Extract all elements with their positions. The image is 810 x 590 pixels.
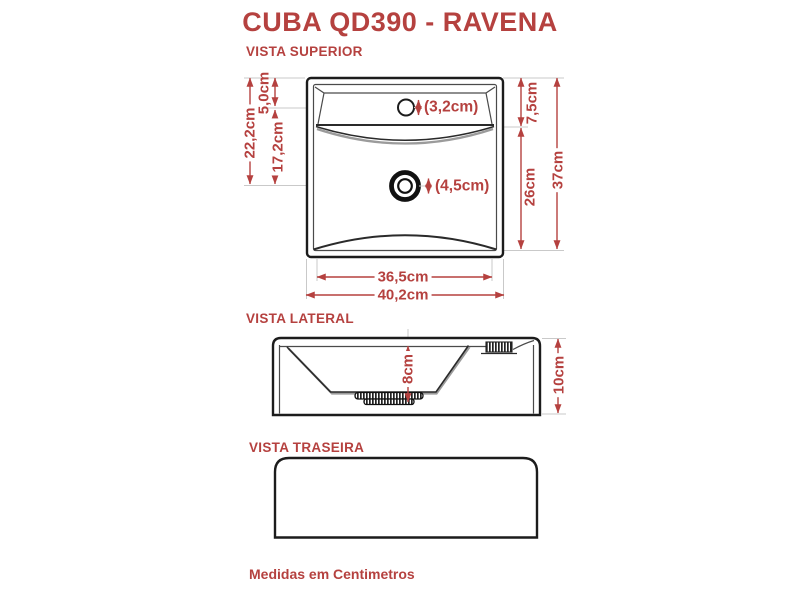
dim-top-to-faucet-line: 5,0cm (257, 72, 272, 115)
dim-inner-width: 36,5cm (375, 269, 432, 286)
faucet-hole-section (486, 342, 512, 352)
dim-side-overall-height: 10cm (551, 353, 568, 397)
drain-section-upper (355, 393, 423, 400)
side-view-label: VISTA LATERAL (246, 311, 354, 326)
drain-section-lower (364, 399, 414, 405)
rear-view-label: VISTA TRASEIRA (249, 440, 364, 455)
dim-faucet-line-to-drain: 17,2cm (270, 119, 287, 176)
dim-deck-depth: 7,5cm (525, 82, 540, 125)
callout-drain-hole-diameter: (4,5cm) (433, 178, 491, 194)
top-view-drawing (244, 78, 564, 299)
side-view-drawing (273, 329, 566, 415)
rear-view-drawing (275, 458, 537, 538)
page-title: CUBA QD390 - RAVENA (0, 7, 800, 38)
dim-basin-depth: 8cm (400, 351, 417, 387)
dim-deck-to-bottom: 26cm (523, 168, 538, 206)
top-view-label: VISTA SUPERIOR (246, 44, 363, 59)
rear-body (275, 458, 537, 538)
drain-hole-inner (398, 179, 412, 193)
dim-overall-height: 37cm (550, 148, 567, 192)
callout-faucet-hole-diameter: (3,2cm) (422, 99, 480, 115)
faucet-hole (398, 100, 414, 116)
units-note: Medidas em Centimetros (249, 566, 415, 582)
dim-overall-width: 40,2cm (375, 287, 432, 304)
diagram-page: CUBA QD390 - RAVENA VISTA SUPERIOR 22,2c… (0, 0, 810, 590)
